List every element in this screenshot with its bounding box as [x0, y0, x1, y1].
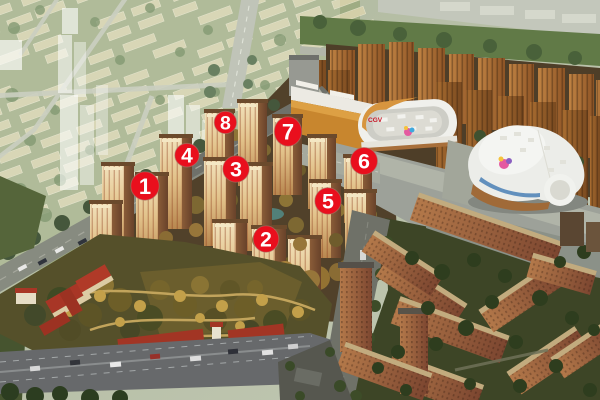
svg-text:8: 8 [220, 112, 231, 134]
svg-text:CGV: CGV [368, 117, 383, 124]
svg-text:4: 4 [181, 145, 193, 168]
svg-text:6: 6 [358, 150, 370, 174]
svg-text:2: 2 [260, 229, 272, 252]
svg-text:3: 3 [230, 158, 242, 182]
svg-text:5: 5 [322, 190, 334, 214]
svg-text:1: 1 [139, 174, 151, 199]
svg-text:7: 7 [282, 119, 294, 144]
